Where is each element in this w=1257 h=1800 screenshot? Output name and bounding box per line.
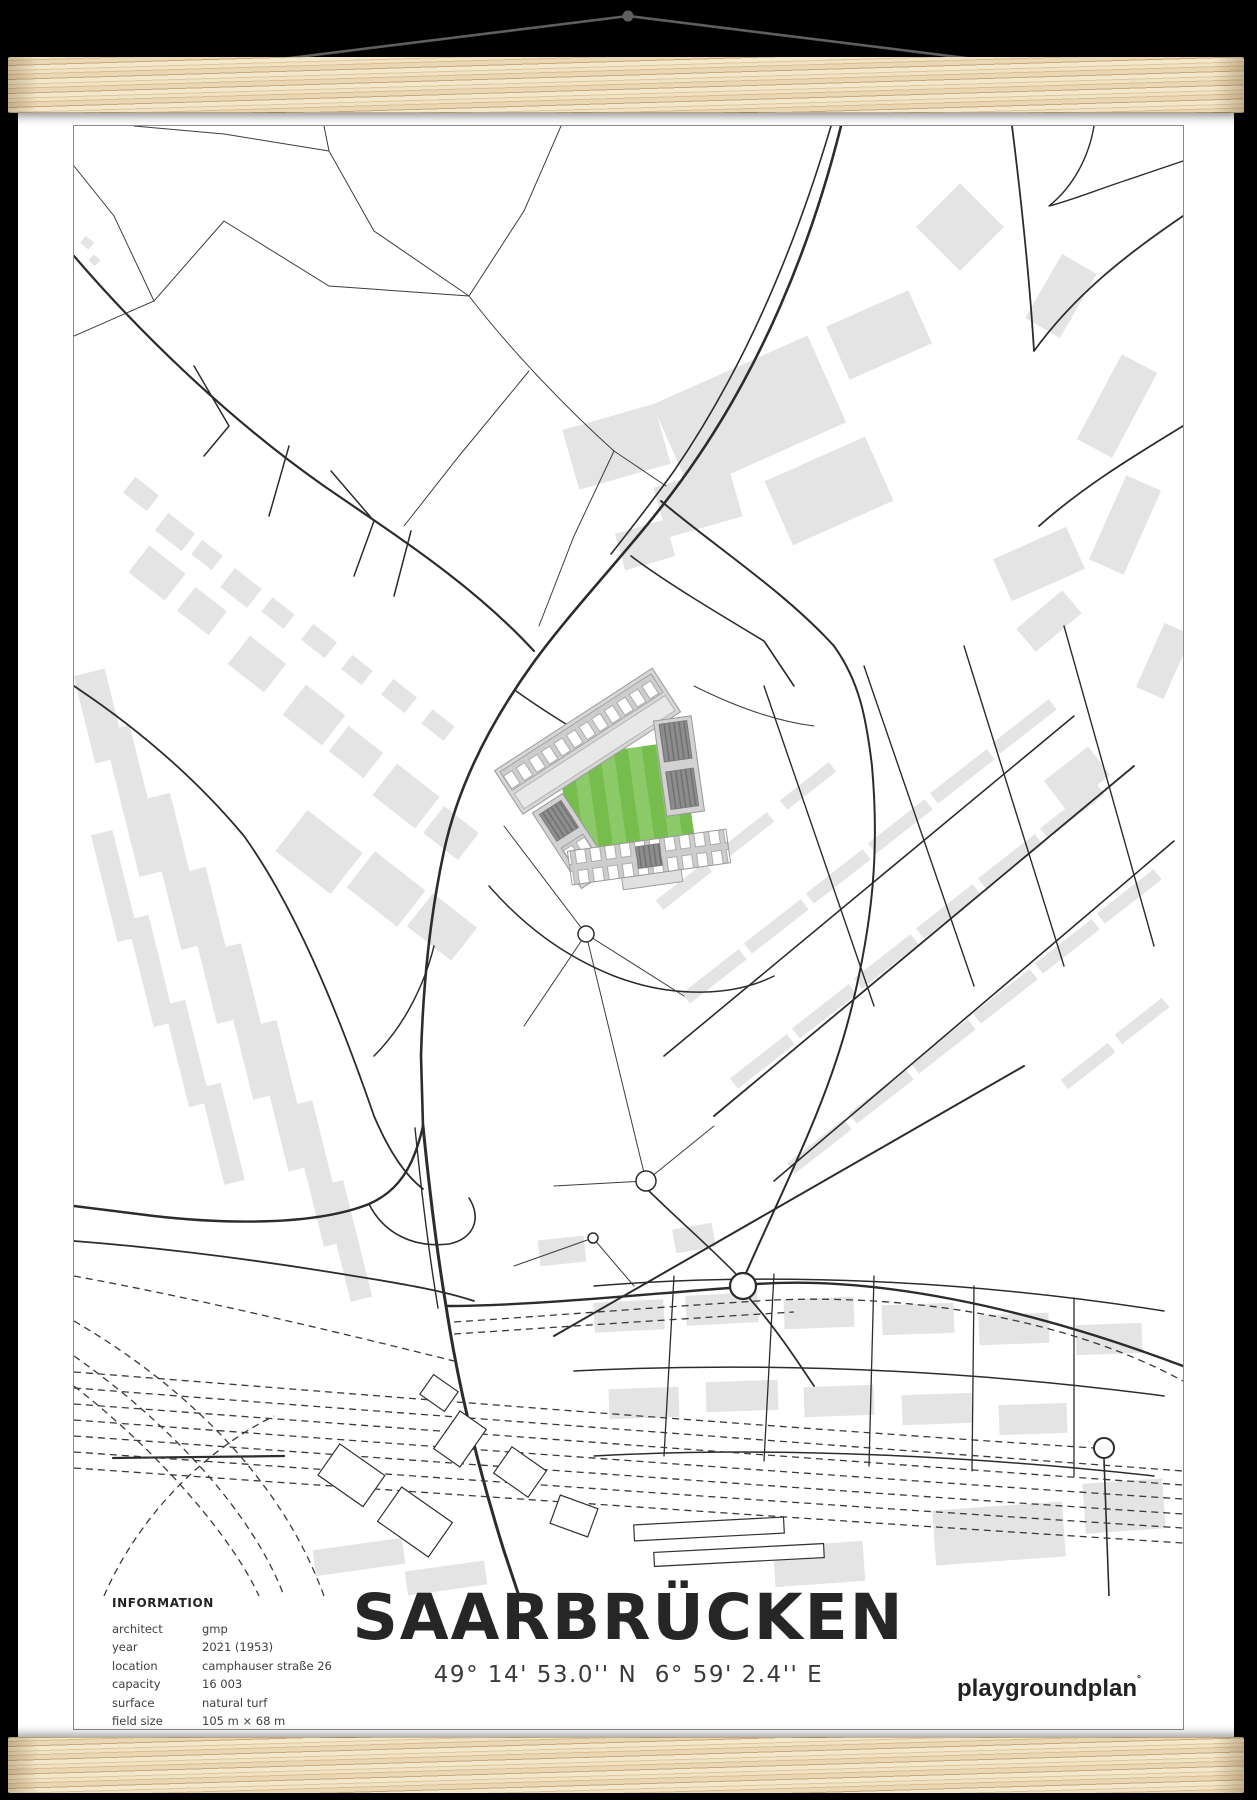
nail-point — [623, 11, 634, 22]
stadium — [495, 668, 733, 897]
map-frame: INFORMATION architectgmp year2021 (1953)… — [73, 125, 1184, 1730]
poster-mockup-stage: INFORMATION architectgmp year2021 (1953)… — [0, 0, 1257, 1800]
brand-logo: playgroundplan° — [957, 1674, 1141, 1703]
info-label: field size — [112, 1714, 202, 1728]
brand-text: playgroundplan — [957, 1675, 1137, 1702]
wooden-hanger-top — [8, 57, 1244, 113]
city-map — [74, 126, 1183, 1596]
wooden-hanger-bottom — [8, 1737, 1244, 1793]
info-value: natural turf — [202, 1696, 432, 1710]
info-label: surface — [112, 1696, 202, 1710]
poster-sheet: INFORMATION architectgmp year2021 (1953)… — [18, 86, 1234, 1754]
brand-mark: ° — [1137, 1674, 1141, 1685]
park-paths-layer — [74, 126, 814, 1286]
info-value: 105 m × 68 m — [202, 1714, 432, 1728]
poster-title: SAARBRÜCKEN — [74, 1584, 1183, 1652]
title-block: SAARBRÜCKEN 49° 14' 53.0'' N 6° 59' 2.4'… — [74, 1584, 1183, 1688]
terrace-rows — [656, 699, 1169, 1174]
